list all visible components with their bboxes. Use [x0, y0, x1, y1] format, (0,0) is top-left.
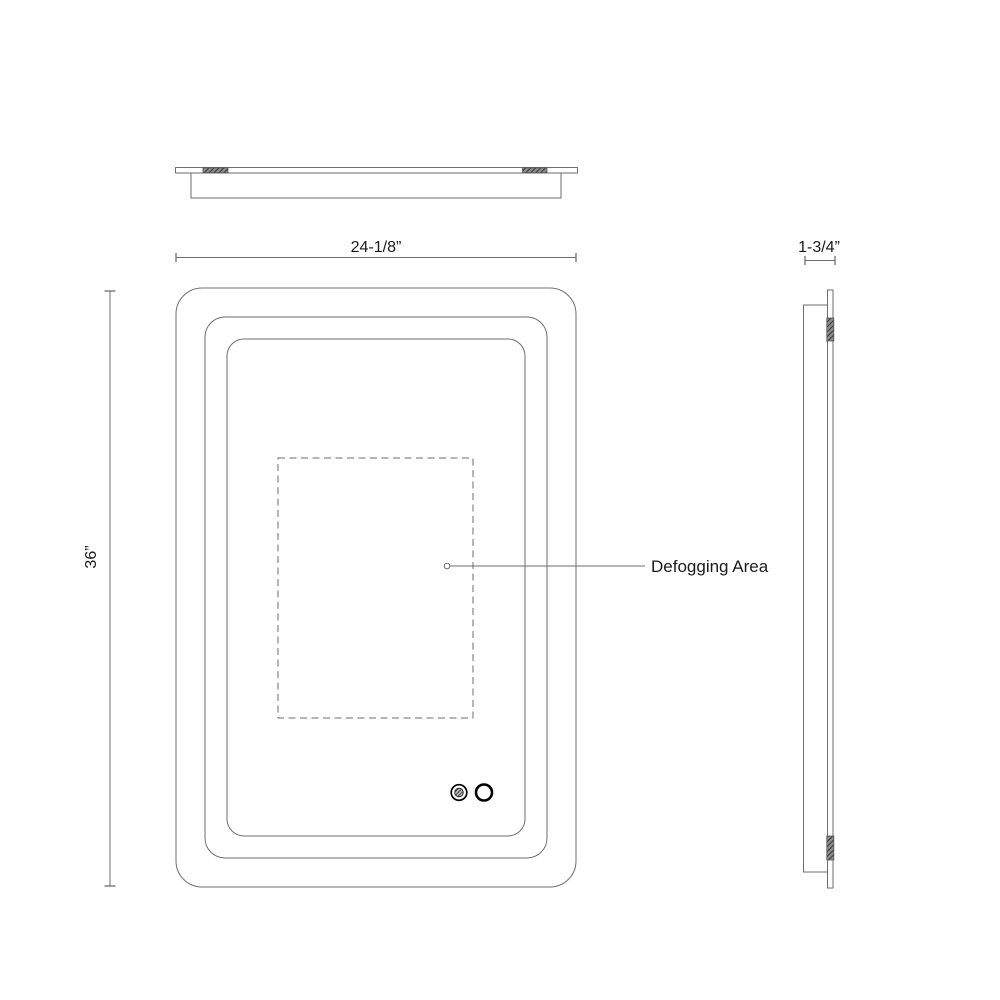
front-view-led-band-inner	[227, 339, 525, 836]
power-button-icon	[476, 785, 492, 801]
defogging-area-label: Defogging Area	[651, 557, 769, 576]
top-view-housing	[191, 173, 561, 199]
defogger-button-icon	[455, 788, 464, 797]
height-dimension: 36”	[83, 291, 116, 886]
defogging-area-outline	[278, 458, 473, 718]
width-dimension-value: 24-1/8”	[351, 239, 402, 256]
front-view-outer-frame	[176, 288, 576, 887]
defogging-area-callout: Defogging Area	[444, 557, 769, 576]
front-view-led-band-outer	[205, 317, 547, 858]
side-view-mounting-bracket-bottom	[827, 836, 834, 860]
top-view-mounting-bracket-right	[523, 168, 548, 173]
depth-dimension-value: 1-3/4”	[798, 239, 840, 256]
top-view	[176, 168, 578, 199]
mirror-spec-drawing: 24-1/8” Defogging Area 36” 1-3/4”	[0, 0, 1000, 1000]
defogger-button	[451, 785, 467, 801]
side-view	[804, 290, 834, 888]
height-dimension-value: 36”	[83, 545, 100, 568]
leader-dot	[444, 563, 450, 569]
top-view-mounting-bracket-left	[203, 168, 228, 173]
side-view-mounting-bracket-top	[827, 318, 834, 341]
top-view-mirror-face	[176, 168, 578, 174]
depth-dimension: 1-3/4”	[798, 239, 840, 265]
width-dimension: 24-1/8”	[176, 239, 576, 262]
front-view: Defogging Area	[176, 288, 769, 887]
side-view-housing	[804, 305, 828, 872]
side-view-mirror-face	[828, 290, 834, 888]
technical-drawing-page: 24-1/8” Defogging Area 36” 1-3/4”	[0, 0, 1000, 1000]
